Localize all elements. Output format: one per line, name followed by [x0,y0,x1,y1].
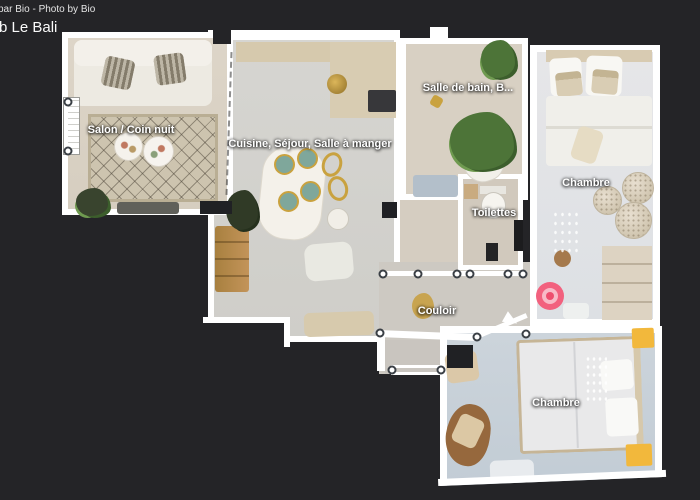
wall-node [64,98,73,107]
place-setting-4 [300,181,321,202]
bed-bottom-pillow-2 [605,397,639,437]
pouf-2 [622,172,654,204]
floorplan-photo[interactable]: Salon / Coin nuit Cuisine, Séjour, Salle… [0,0,700,500]
wall-node [437,366,446,375]
window-marker-line [64,102,68,151]
photo-credit: par Bio - Photo by Bio [0,4,95,15]
shower-mat [413,175,458,197]
wall-node [379,270,388,279]
bed-right-cushion-left [555,71,583,98]
wall-node [414,270,423,279]
doorway-gap-top [213,30,231,44]
wall-node [453,270,462,279]
wood-console [215,226,249,292]
coffee-table-1 [114,132,143,161]
floor-speckles-right [552,210,580,255]
sofa-cushion-striped-1 [100,55,136,91]
wall-node [504,270,513,279]
wall-node [376,329,385,338]
place-setting-3 [278,191,299,212]
place-setting-2 [297,148,318,169]
bottom-room-void [447,345,473,368]
bed-bottom-speckles [585,355,607,403]
nightstand-yellow-top [632,328,655,349]
room-label-salle-de-bain: Salle de bain, B... [423,82,513,94]
marker-dot-icon [546,292,554,300]
listing-title: b Le Bali [0,19,57,36]
white-shag-rug [303,241,354,282]
bed-right-cushion-right [591,69,619,95]
wall-node [466,270,475,279]
wc-door-gap [514,220,523,251]
nightstand-yellow-bottom [626,444,653,467]
wall-node [64,147,73,156]
dresser [602,246,652,320]
wall-node [522,330,531,339]
white-basket [563,303,589,319]
room-label-couloir: Couloir [418,305,457,317]
wc-shelf [464,184,478,199]
sofa-cushion-striped-2 [153,52,187,86]
coffee-table-2 [143,136,174,167]
room-label-salon: Salon / Coin nuit [88,124,175,136]
photo-viewer: par Bio - Photo by Bio b Le Bali [0,0,700,500]
sofa-backrest [74,40,212,66]
couloir-wall-stub [377,333,385,371]
bed-right-fold [546,126,652,129]
brass-sink [327,74,347,94]
wall-node [473,333,482,342]
bath-door-niche [382,202,397,218]
bathroom-top-tab [430,27,448,39]
salon-bench [117,202,179,214]
kitchen-counter-top [236,42,333,62]
white-pot [327,208,349,230]
salon-door-niche [200,201,232,214]
room-label-cuisine: Cuisine, Séjour, Salle à manger [228,138,391,150]
salon-plant [76,188,108,216]
bed-bottom-frame [516,336,644,454]
bathroom-plant-large [450,112,514,170]
bathroom-plant-corner [481,40,515,78]
room-label-chambre-bas: Chambre [532,397,580,409]
bathroom-entry-floor [400,194,458,271]
wc-dark-detail [486,243,498,261]
stove [368,90,396,112]
room-label-toilettes: Toilettes [472,207,516,219]
current-position-marker[interactable] [536,282,564,310]
plan-step-mask [203,317,290,347]
room-label-chambre-droite: Chambre [562,177,610,189]
wall-node [519,270,528,279]
place-setting-1 [274,154,295,175]
step-bench [304,311,375,337]
wall-node [388,366,397,375]
passage-double-line [391,365,441,375]
pouf-3 [615,202,652,239]
